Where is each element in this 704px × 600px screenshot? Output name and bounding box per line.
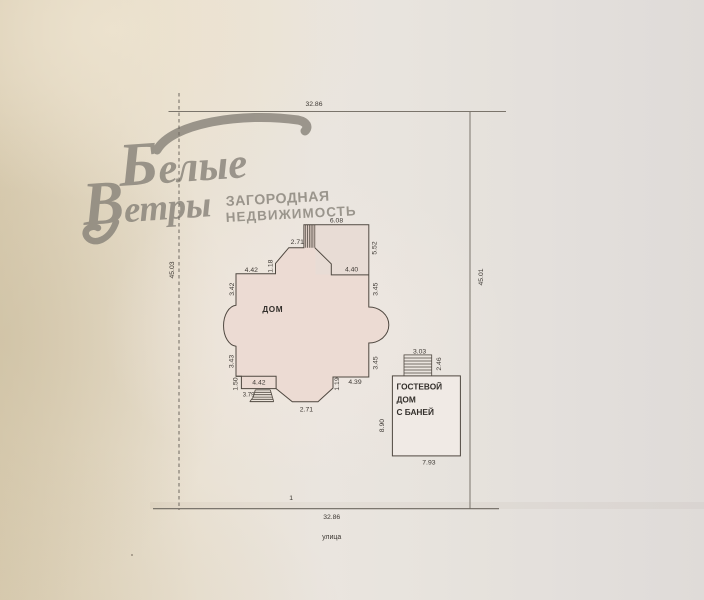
svg-text:4.40: 4.40 <box>345 267 358 274</box>
svg-text:ДОМ: ДОМ <box>262 305 283 314</box>
svg-text:ГОСТЕВОЙ: ГОСТЕВОЙ <box>397 381 443 392</box>
svg-text:3.45: 3.45 <box>373 282 380 295</box>
svg-text:2.46: 2.46 <box>436 357 443 370</box>
svg-text:2.71: 2.71 <box>291 239 304 246</box>
svg-text:3.03: 3.03 <box>413 349 426 356</box>
svg-text:1.18: 1.18 <box>267 259 274 272</box>
svg-text:32.86: 32.86 <box>323 514 340 521</box>
svg-text:ДОМ: ДОМ <box>397 394 416 404</box>
svg-text:С БАНЕЙ: С БАНЕЙ <box>397 406 434 417</box>
svg-text:8.90: 8.90 <box>379 419 386 432</box>
svg-text:3.79: 3.79 <box>243 392 255 398</box>
svg-text:4.42: 4.42 <box>245 267 258 274</box>
svg-text:6.08: 6.08 <box>330 218 343 225</box>
svg-text:45.03: 45.03 <box>169 261 176 278</box>
svg-text:1.19: 1.19 <box>334 377 341 390</box>
svg-text:3.45: 3.45 <box>373 356 380 369</box>
svg-text:улица: улица <box>322 534 341 541</box>
svg-text:3.42: 3.42 <box>229 282 236 295</box>
svg-text:1: 1 <box>289 495 293 502</box>
svg-text:1.50: 1.50 <box>232 377 239 390</box>
svg-text:4.39: 4.39 <box>348 379 361 386</box>
svg-text:32.86: 32.86 <box>305 101 322 108</box>
svg-text:2.71: 2.71 <box>300 407 313 414</box>
svg-text:5.52: 5.52 <box>372 241 379 254</box>
svg-text:45.01: 45.01 <box>478 268 485 285</box>
svg-text:4.42: 4.42 <box>252 380 265 387</box>
svg-text:3.43: 3.43 <box>229 355 236 368</box>
svg-text:7.93: 7.93 <box>422 460 435 467</box>
